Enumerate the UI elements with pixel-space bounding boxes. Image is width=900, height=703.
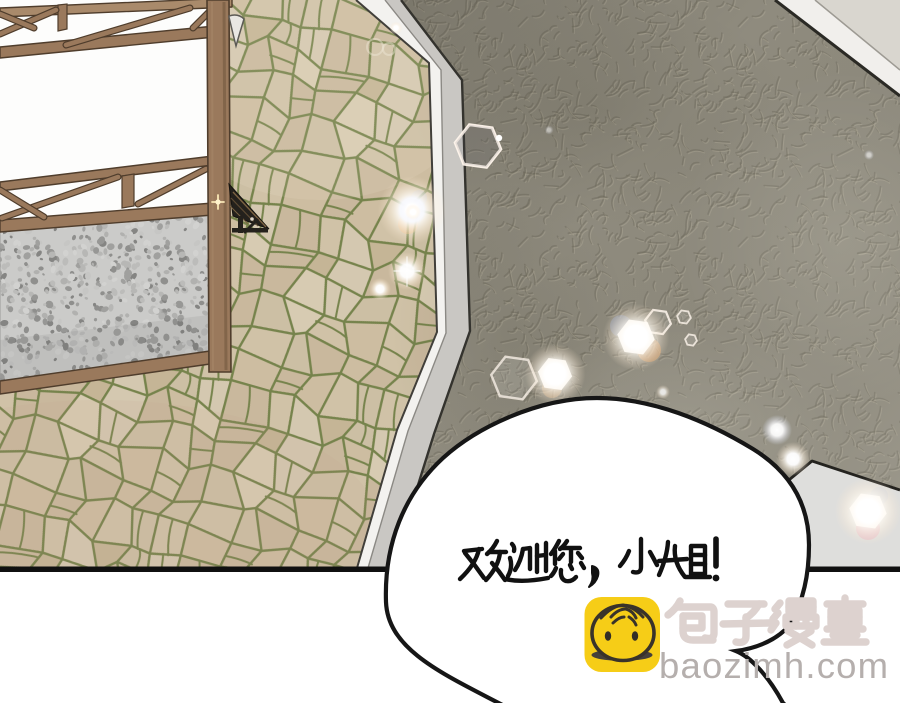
svg-text:baozimh.com: baozimh.com — [659, 645, 889, 686]
